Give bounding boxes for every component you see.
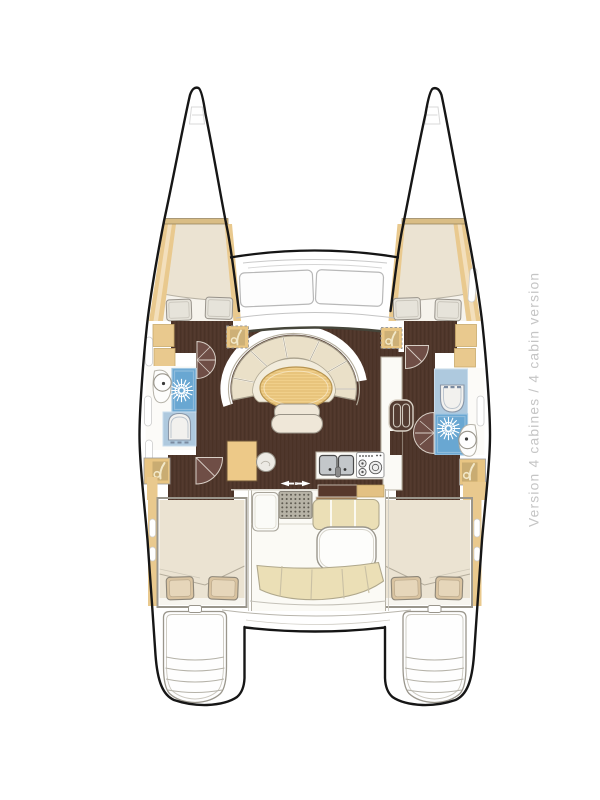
svg-text:Version 4 cabines / 4 cabin ve: Version 4 cabines / 4 cabin version bbox=[527, 272, 542, 527]
